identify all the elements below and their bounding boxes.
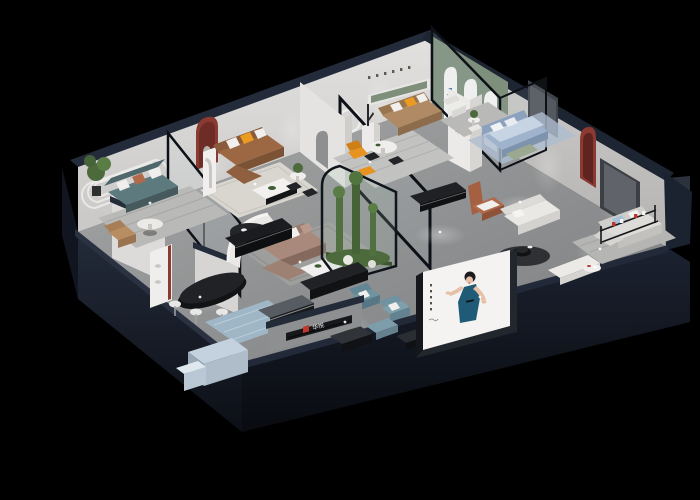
right-wall-red-arch-niche (580, 127, 596, 188)
display-niche-shelf (150, 244, 172, 308)
fr-coffee-table (583, 264, 601, 272)
white-flower-ball (343, 255, 353, 265)
face (466, 276, 473, 283)
showroom-3d-render: 华悦 (0, 0, 700, 500)
arc-floor-lamp (203, 147, 216, 197)
scene-canvas: 华悦 (0, 0, 700, 500)
